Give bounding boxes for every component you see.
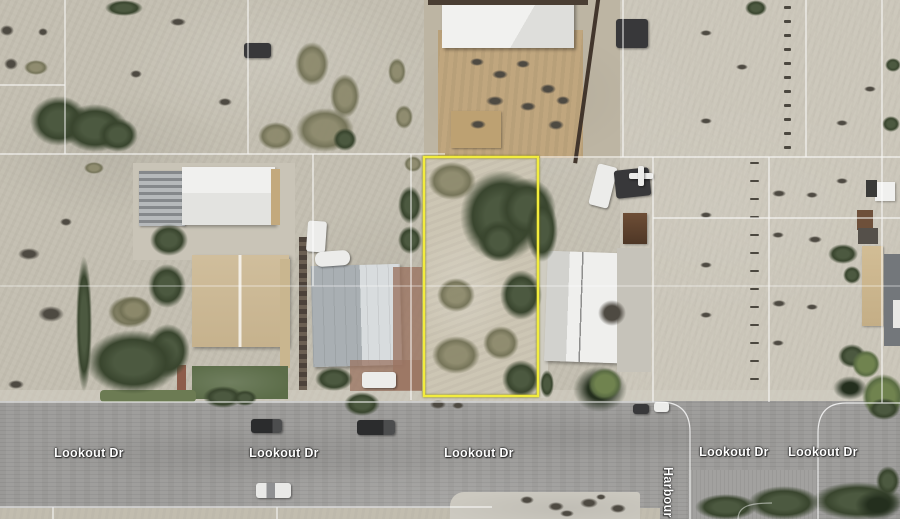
highlighted-parcel-outline <box>424 157 538 396</box>
road-label-lookout-dr: Lookout Dr <box>699 445 769 459</box>
road-label-lookout-dr: Lookout Dr <box>788 445 858 459</box>
satellite-map-canvas[interactable]: Lookout Dr Lookout Dr Lookout Dr Lookout… <box>0 0 900 519</box>
road-label-cross-street: Harbour <box>661 467 675 518</box>
road-label-lookout-dr: Lookout Dr <box>444 446 514 460</box>
road-label-lookout-dr: Lookout Dr <box>54 446 124 460</box>
road-label-lookout-dr: Lookout Dr <box>249 446 319 460</box>
parcel-boundary-lines <box>0 0 900 519</box>
